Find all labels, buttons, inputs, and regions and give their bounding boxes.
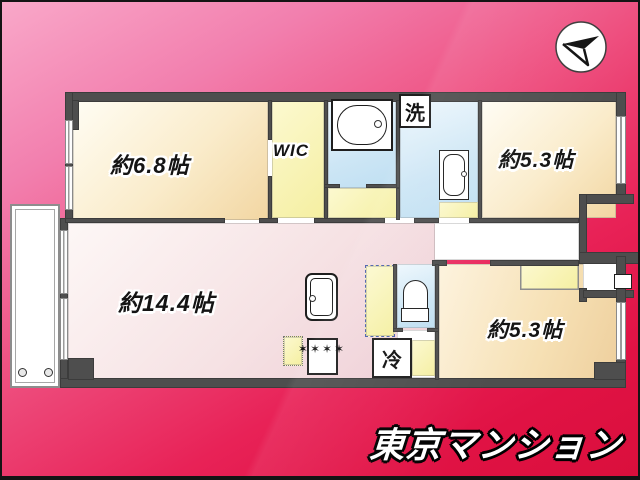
- floorplan-canvas: ✶✶✶✶ 洗 冷 約6.8帖 WIC 約5.3帖 約14.4帖 約5.3帖 東京…: [0, 0, 640, 480]
- fridge-space-label: 冷: [372, 338, 412, 378]
- room-label-living-dining: 約14.4帖: [118, 284, 215, 318]
- wall: [478, 100, 482, 220]
- room-label-bedroom-southeast: 約5.3帖: [487, 314, 563, 344]
- balcony-rail: [15, 209, 55, 383]
- floor-hall-strip: [412, 340, 435, 376]
- wall: [268, 100, 272, 140]
- wall: [427, 328, 439, 332]
- washbasin-tap-icon: [461, 171, 467, 177]
- bathtub-drain-icon: [374, 120, 382, 128]
- stove-burners-icon: ✶✶✶✶: [308, 342, 336, 357]
- floor-entry-step: [520, 264, 579, 290]
- wall: [469, 218, 579, 223]
- entry-door-step: [614, 274, 632, 289]
- floor-storage: [365, 265, 395, 337]
- wall: [324, 184, 340, 188]
- wall: [583, 290, 634, 298]
- wall: [594, 362, 626, 380]
- wall: [490, 260, 579, 266]
- wall: [314, 218, 385, 223]
- sink-tap-icon: [309, 295, 316, 302]
- balcony-drain-icon: [18, 368, 27, 377]
- wall: [393, 328, 403, 332]
- floor-hallway: [328, 188, 400, 218]
- wall: [393, 264, 397, 332]
- floor-hallway: [439, 202, 478, 218]
- window: [616, 116, 626, 184]
- washer-space-label: 洗: [399, 94, 431, 128]
- window: [60, 230, 68, 294]
- room-label-wic: WIC: [273, 141, 309, 161]
- wall: [396, 188, 400, 220]
- wall: [65, 218, 225, 223]
- balcony-drain-icon: [44, 368, 53, 377]
- wall: [435, 264, 439, 380]
- window: [65, 120, 73, 164]
- brand-logo: 東京マンション: [368, 417, 624, 468]
- wall: [414, 218, 439, 223]
- room-label-bedroom-west: 約6.8帖: [110, 148, 190, 180]
- window: [65, 166, 73, 210]
- floor-corridor: [432, 223, 579, 260]
- wall: [324, 100, 328, 220]
- window: [616, 302, 626, 360]
- bathtub: [331, 99, 393, 151]
- wall: [60, 378, 626, 388]
- wall: [268, 176, 272, 220]
- wall: [68, 358, 94, 380]
- window: [60, 298, 68, 360]
- balcony: [10, 204, 60, 388]
- toilet-tank: [401, 308, 429, 322]
- wall: [366, 184, 400, 188]
- room-label-bedroom-northeast: 約5.3帖: [498, 144, 574, 174]
- wall: [259, 218, 278, 223]
- compass-icon: [552, 18, 610, 76]
- wall: [579, 252, 640, 264]
- wall: [579, 194, 634, 204]
